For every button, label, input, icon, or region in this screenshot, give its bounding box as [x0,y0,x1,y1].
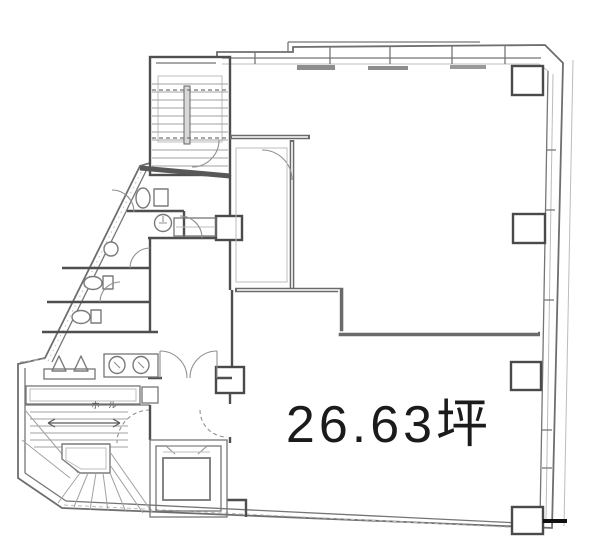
toilet-tank-icon [154,189,168,206]
door-arc-dashed [200,410,227,437]
toilet-icon [72,311,90,324]
columns [511,66,545,534]
double-entry-door-icon [160,351,217,378]
column-icon [511,362,541,390]
sink-icon [104,242,118,256]
stairwell-lower [22,405,152,513]
toilet-tank-icon [91,310,101,323]
center-room-floor-line [236,148,287,282]
hall-cabinet-small [142,387,158,403]
glazing-bottom [64,505,544,529]
stairwell-upper [140,57,230,176]
interior-walls [216,137,540,517]
column-icon [512,66,543,95]
window-sill-2 [368,66,408,70]
stair-treads [30,412,128,447]
main-room: 26.63坪 [236,148,492,454]
right-trim-line [564,60,573,526]
floorplan-canvas: ホール 26.63坪 [0,0,606,559]
wall-room-divider [235,290,540,334]
column-icon [512,507,543,534]
elevator-shaft-inner [156,446,221,511]
wall-pier [216,367,244,393]
column-icon [513,214,545,243]
elevator-cab-icon [163,458,210,500]
door-arc [130,248,150,268]
toilet-icon [136,188,150,208]
toilet-icon [84,277,102,290]
hall: ホール [26,386,158,410]
wall-inner-diagonal [52,171,146,362]
double-door-leaves [160,351,217,378]
window-sill-3 [450,65,486,69]
toilet-tank-icon [103,276,113,289]
door-arc [192,140,219,167]
restrooms [42,188,242,379]
entry-mark [543,519,567,523]
stair-rail [184,86,190,144]
window-sill-1 [297,65,335,70]
area-label: 26.63坪 [286,396,492,454]
elevator-door-icon [166,446,207,454]
floorplan: ホール 26.63坪 [0,0,606,559]
duct-shaft [216,216,242,240]
